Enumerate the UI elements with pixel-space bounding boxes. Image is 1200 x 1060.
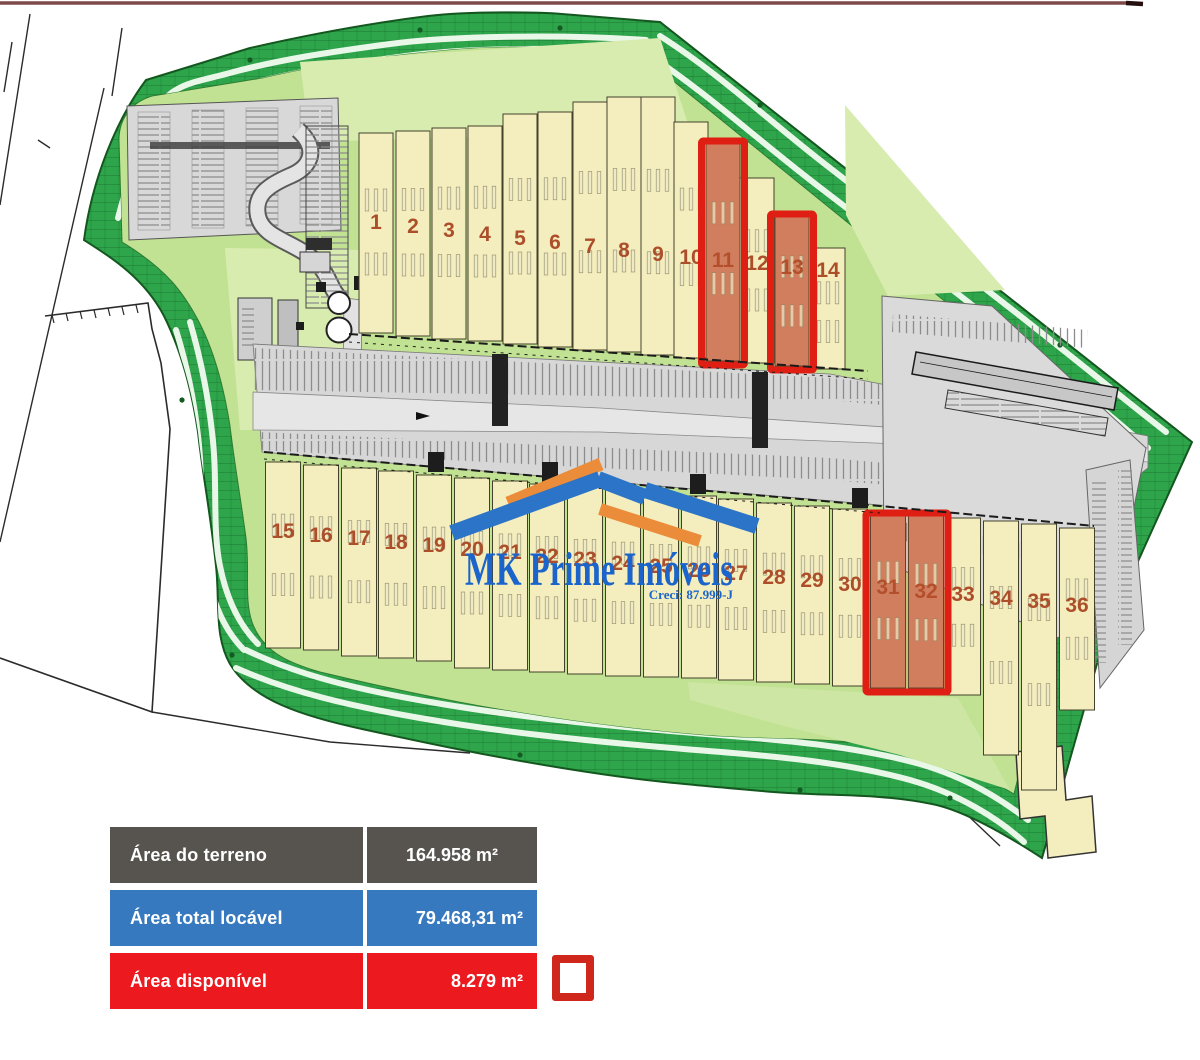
unit-number-14: 14 — [816, 259, 840, 282]
unit-34: 34 — [984, 521, 1019, 755]
unit-number-28: 28 — [762, 566, 786, 589]
legend-value-locavel: 79.468,31 m² — [367, 890, 537, 946]
unit-15: 15 — [266, 462, 301, 648]
site-plan-page: 1234567891011121314151617181920212223242… — [0, 0, 1200, 1060]
unit-number-36: 36 — [1065, 594, 1088, 617]
unit-36: 36 — [1060, 528, 1095, 710]
legend-label-terreno: Área do terreno — [110, 827, 363, 883]
unit-35: 35 — [1022, 524, 1057, 790]
unit-number-18: 18 — [384, 531, 408, 554]
available-unit-swatch-icon — [552, 955, 594, 1001]
unit-29: 29 — [795, 506, 830, 684]
legend-row-terreno: Área do terreno 164.958 m² — [110, 827, 670, 883]
unit-number-12: 12 — [745, 252, 768, 275]
unit-19: 19 — [417, 475, 452, 661]
unit-8: 8 — [607, 97, 641, 352]
unit-number-29: 29 — [800, 569, 823, 592]
tank-icon — [327, 318, 352, 343]
unit-number-4: 4 — [479, 223, 491, 246]
unit-number-8: 8 — [618, 239, 630, 262]
logo-creci: Creci: 87.999-J — [649, 587, 734, 602]
unit-number-30: 30 — [838, 573, 861, 596]
tank-icon — [328, 292, 350, 314]
unit-16: 16 — [304, 465, 339, 650]
unit-number-19: 19 — [422, 534, 445, 557]
unit-4: 4 — [468, 126, 502, 341]
unit-5: 5 — [503, 114, 537, 344]
unit-number-5: 5 — [514, 227, 526, 250]
unit-7: 7 — [573, 102, 607, 350]
unit-number-1: 1 — [370, 211, 382, 234]
unit-2: 2 — [396, 131, 430, 336]
north-boundary-line — [0, 3, 1143, 4]
unit-3: 3 — [432, 128, 466, 339]
unit-number-9: 9 — [652, 243, 664, 266]
unit-number-16: 16 — [309, 524, 332, 547]
unit-9: 9 — [641, 97, 675, 355]
legend-table: Área do terreno 164.958 m² Área total lo… — [110, 827, 670, 1027]
unit-number-15: 15 — [271, 520, 295, 543]
legend-row-locavel: Área total locável 79.468,31 m² — [110, 890, 670, 946]
unit-number-35: 35 — [1027, 590, 1051, 613]
unit-18: 18 — [379, 471, 414, 658]
unit-number-2: 2 — [407, 215, 419, 238]
unit-number-34: 34 — [989, 587, 1013, 610]
unit-1: 1 — [359, 133, 393, 333]
unit-6: 6 — [538, 112, 572, 347]
unit-17: 17 — [342, 468, 377, 656]
unit-number-17: 17 — [347, 527, 370, 550]
legend-value-terreno: 164.958 m² — [367, 827, 537, 883]
unit-number-33: 33 — [951, 583, 974, 606]
legend-label-locavel: Área total locável — [110, 890, 363, 946]
unit-30: 30 — [833, 509, 868, 686]
legend-value-disponivel: 8.279 m² — [367, 953, 537, 1009]
unit-28: 28 — [757, 503, 792, 682]
unit-number-7: 7 — [584, 235, 596, 258]
unit-number-3: 3 — [443, 219, 455, 242]
unit-number-6: 6 — [549, 231, 561, 254]
legend-label-disponivel: Área disponível — [110, 953, 363, 1009]
